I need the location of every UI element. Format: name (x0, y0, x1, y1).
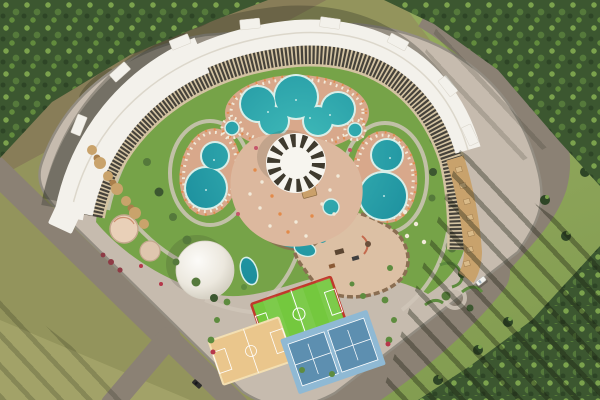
kids-pool-left (225, 121, 239, 135)
kids-splash-pool (323, 199, 339, 215)
dome-tent (108, 259, 114, 265)
aerial-render (0, 0, 600, 400)
dome-tent (101, 253, 106, 258)
kids-pool-right (348, 123, 362, 137)
dome-tent (117, 267, 122, 272)
